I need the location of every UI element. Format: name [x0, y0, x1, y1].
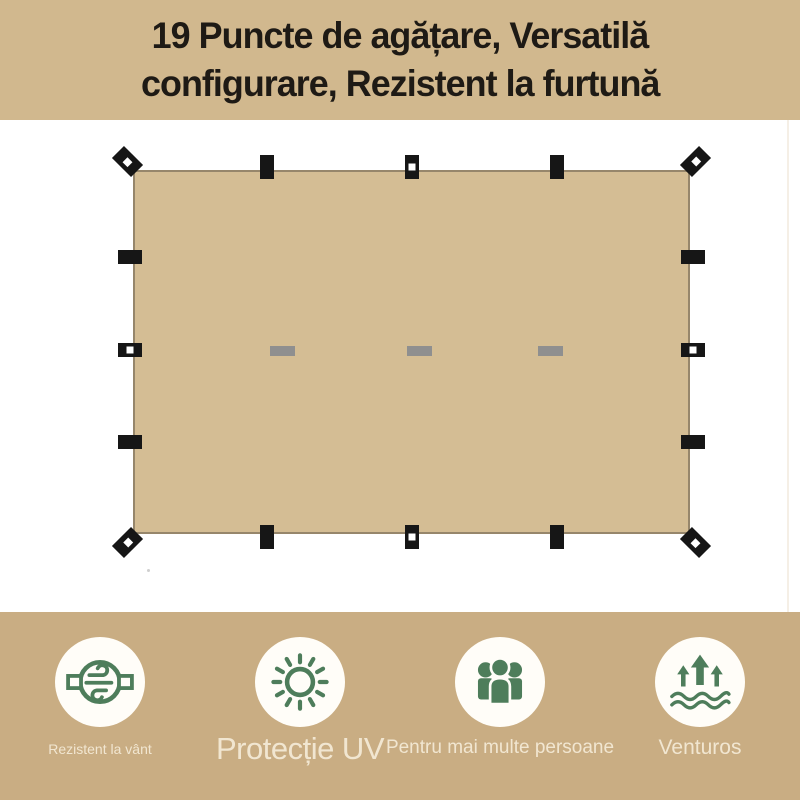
page-edge-shadow — [787, 120, 789, 612]
icon-circle — [655, 637, 745, 727]
feature-label: Protecție UV — [216, 731, 384, 767]
corner-loop-icon — [680, 527, 711, 558]
edge-loop-icon — [405, 155, 419, 179]
edge-loop-icon — [118, 435, 142, 449]
edge-loop-icon — [260, 525, 274, 549]
corner-loop-icon — [112, 146, 143, 177]
feature-band: Rezistent la vânt — [0, 612, 800, 800]
edge-loop-icon — [550, 155, 564, 179]
feature-label: Rezistent la vânt — [48, 741, 152, 757]
wind-resistant-icon — [62, 644, 138, 720]
product-infographic: 19 Puncte de agățare, Versatilă configur… — [0, 0, 800, 800]
corner-loop-icon — [112, 527, 143, 558]
edge-loop-icon — [118, 343, 142, 357]
multi-person-icon — [462, 644, 538, 720]
edge-loop-icon — [118, 250, 142, 264]
page-title-line1: 19 Puncte de agățare, Versatilă — [152, 12, 649, 60]
icon-circle — [455, 637, 545, 727]
feature-wind-resistant: Rezistent la vânt — [0, 612, 200, 800]
edge-loop-icon — [260, 155, 274, 179]
feature-label: Venturos — [659, 736, 742, 760]
feature-multi-person: Pentru mai multe persoane — [400, 612, 600, 800]
edge-loop-icon — [681, 343, 705, 357]
edge-loop-icon — [681, 250, 705, 264]
page-title-line2: configurare, Rezistent la furtună — [141, 60, 659, 108]
uv-protection-icon — [262, 644, 338, 720]
icon-circle — [255, 637, 345, 727]
corner-loop-icon — [680, 146, 711, 177]
photo-speck — [147, 569, 150, 572]
edge-loop-icon — [681, 435, 705, 449]
feature-ventilation: Venturos — [600, 612, 800, 800]
feature-label: Pentru mai multe persoane — [386, 737, 614, 759]
tarp-illustration-stage — [0, 120, 800, 612]
edge-loop-icon — [405, 525, 419, 549]
velcro-strip — [407, 346, 432, 356]
feature-uv-protection: Protecție UV — [200, 612, 400, 800]
title-banner: 19 Puncte de agățare, Versatilă configur… — [0, 0, 800, 120]
velcro-strip — [270, 346, 295, 356]
tarp-canvas — [133, 170, 690, 534]
edge-loop-icon — [550, 525, 564, 549]
icon-circle — [55, 637, 145, 727]
ventilation-icon — [662, 644, 738, 720]
velcro-strip — [538, 346, 563, 356]
